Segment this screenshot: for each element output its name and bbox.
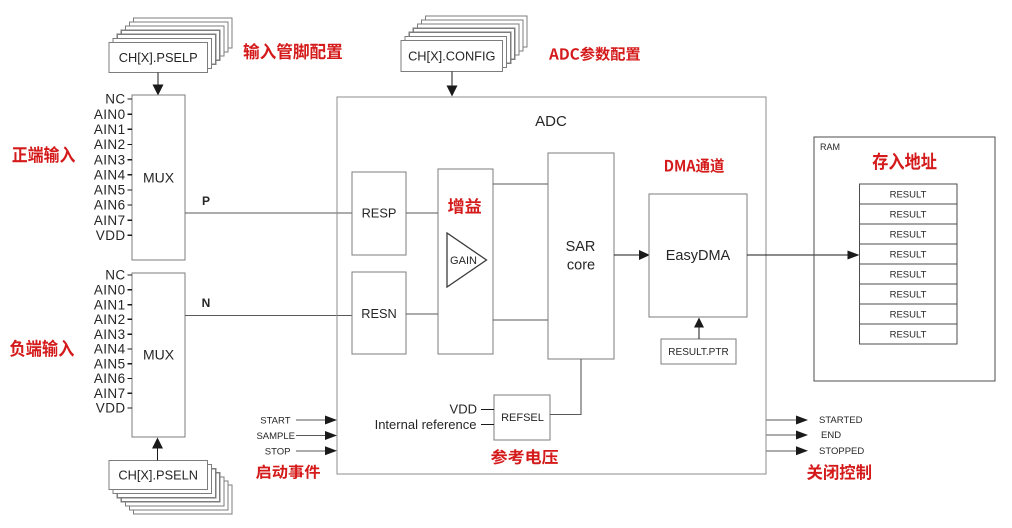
svg-text:RESULT: RESULT (890, 250, 927, 261)
svg-text:VDD: VDD (96, 401, 126, 416)
svg-text:CH[X].PSELN: CH[X].PSELN (118, 468, 198, 483)
svg-text:AIN0: AIN0 (94, 107, 126, 122)
svg-text:AIN3: AIN3 (94, 327, 126, 342)
svg-text:AIN6: AIN6 (94, 371, 126, 386)
svg-text:NC: NC (105, 268, 125, 283)
svg-text:SAR: SAR (566, 239, 596, 255)
svg-text:AIN2: AIN2 (94, 137, 126, 152)
svg-text:AIN4: AIN4 (94, 167, 126, 182)
svg-text:START: START (260, 416, 290, 427)
svg-text:AIN7: AIN7 (94, 213, 126, 228)
svg-text:SAMPLE: SAMPLE (256, 431, 295, 442)
svg-text:RESULT: RESULT (890, 330, 927, 341)
svg-text:RESULT: RESULT (890, 310, 927, 321)
svg-text:AIN4: AIN4 (94, 342, 126, 357)
svg-text:RESULT: RESULT (890, 210, 927, 221)
svg-text:NC: NC (105, 92, 125, 107)
svg-text:VDD: VDD (96, 228, 126, 243)
svg-text:RESULT: RESULT (890, 270, 927, 281)
svg-text:AIN1: AIN1 (94, 297, 126, 312)
svg-text:RAM: RAM (820, 142, 840, 152)
svg-text:AIN0: AIN0 (94, 283, 126, 298)
svg-text:RESULT: RESULT (890, 290, 927, 301)
svg-text:REFSEL: REFSEL (501, 412, 544, 424)
svg-text:AIN5: AIN5 (94, 183, 126, 198)
svg-text:EasyDMA: EasyDMA (666, 248, 731, 264)
svg-text:ADC: ADC (535, 113, 567, 130)
svg-text:MUX: MUX (143, 170, 175, 186)
svg-text:RESP: RESP (362, 206, 397, 221)
svg-text:AIN3: AIN3 (94, 152, 126, 167)
svg-text:RESN: RESN (361, 306, 397, 321)
svg-text:AIN7: AIN7 (94, 386, 126, 401)
svg-text:VDD: VDD (450, 402, 477, 417)
svg-text:STOPPED: STOPPED (819, 446, 864, 457)
svg-text:Internal reference: Internal reference (375, 417, 477, 432)
svg-text:STOP: STOP (265, 447, 291, 458)
svg-text:END: END (821, 430, 841, 441)
svg-text:CH[X].CONFIG: CH[X].CONFIG (408, 49, 495, 64)
svg-text:P: P (202, 194, 210, 208)
svg-text:RESULT: RESULT (890, 190, 927, 201)
svg-text:RESULT: RESULT (890, 230, 927, 241)
svg-text:AIN6: AIN6 (94, 198, 126, 213)
svg-text:AIN5: AIN5 (94, 356, 126, 371)
svg-text:MUX: MUX (143, 347, 175, 363)
svg-text:RESULT.PTR: RESULT.PTR (668, 347, 728, 358)
svg-text:STARTED: STARTED (819, 415, 863, 426)
svg-text:AIN1: AIN1 (94, 122, 126, 137)
svg-text:GAIN: GAIN (450, 255, 477, 267)
svg-text:AIN2: AIN2 (94, 312, 126, 327)
svg-text:N: N (202, 296, 211, 310)
svg-text:CH[X].PSELP: CH[X].PSELP (119, 50, 198, 65)
svg-text:core: core (567, 258, 595, 274)
